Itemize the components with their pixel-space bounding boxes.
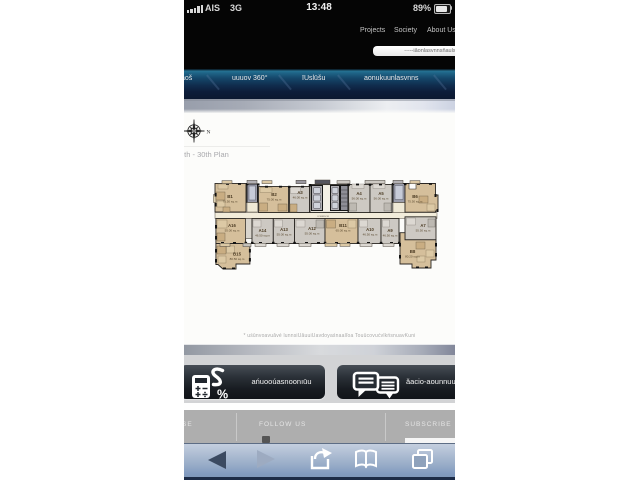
svg-text:46.50 sq.m: 46.50 sq.m [383,234,398,238]
svg-text:A4: A4 [356,191,362,196]
svg-text:75.00 sq.m: 75.00 sq.m [267,198,282,202]
svg-text:N: N [207,130,211,136]
svg-text:46.00 sq.m: 46.00 sq.m [293,196,308,200]
svg-text:%: % [217,388,228,401]
svg-text:55.00 sq.m: 55.00 sq.m [225,229,240,233]
svg-text:56.00 sq.m: 56.00 sq.m [352,197,367,201]
svg-text:A14: A14 [259,228,267,233]
svg-text:75.50 sq.m: 75.50 sq.m [408,200,423,204]
svg-text:65.00 sq.m: 65.00 sq.m [336,229,351,233]
svg-text:80.20 sq.m: 80.20 sq.m [405,255,420,259]
svg-text:46.50 sq.m: 46.50 sq.m [363,233,378,237]
svg-text:56.00 sq.m: 56.00 sq.m [374,197,389,201]
svg-text:B2: B2 [271,192,277,197]
svg-text:75.50 sq.m: 75.50 sq.m [223,200,238,204]
svg-text:B1: B1 [227,194,233,199]
svg-text:A9: A9 [387,228,393,233]
svg-text:A10: A10 [366,227,374,232]
svg-text:A16: A16 [228,223,236,228]
svg-text:A12: A12 [308,226,316,231]
svg-text:55.00 sq.m: 55.00 sq.m [305,232,320,236]
svg-text:CORRIDOR: CORRIDOR [317,216,329,218]
svg-text:B11: B11 [339,223,347,228]
svg-text:B8: B8 [410,249,416,254]
svg-text:B15: B15 [233,252,242,257]
svg-text:55.50 sq.m: 55.50 sq.m [416,229,431,233]
svg-text:46.50 sq.m: 46.50 sq.m [255,234,270,238]
svg-text:A13: A13 [280,227,288,232]
svg-text:A7: A7 [420,223,426,228]
svg-text:A3: A3 [297,190,303,195]
svg-text:A5: A5 [378,191,384,196]
svg-text:55.00 sq.m: 55.00 sq.m [277,233,292,237]
svg-text:80.50 sq.m: 80.50 sq.m [230,257,245,261]
svg-text:B6: B6 [412,194,418,199]
